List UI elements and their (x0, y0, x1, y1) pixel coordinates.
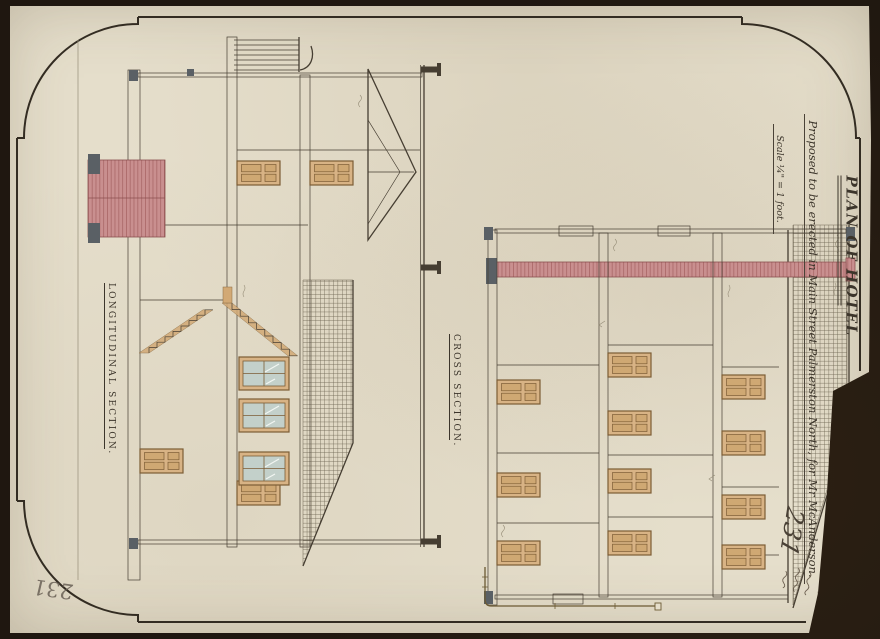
ground-line (488, 230, 497, 605)
gooseneck-rail (300, 46, 313, 70)
ground-floor (128, 70, 140, 580)
sheet-title: PLAN OF HOTEL (838, 176, 861, 306)
footing-block (484, 227, 493, 240)
blueprint-paper: PLAN OF HOTEL Proposed to be erected in … (0, 0, 880, 639)
label-longitudinal-section: LONGITUDINAL SECTION. (104, 283, 116, 449)
label-cross-section: CROSS SECTION. (449, 334, 461, 440)
downpipe (482, 567, 661, 610)
staircase (139, 287, 298, 356)
brick-chimney-foundation (88, 154, 165, 243)
footing-block (129, 70, 138, 81)
balcony-railing (234, 37, 313, 72)
scale-note: Scale ¼" = 1 foot. (773, 124, 785, 234)
roof-truss (368, 69, 416, 240)
balcony-bracket (187, 69, 194, 76)
left-end-wall (138, 73, 422, 77)
signature-handwriting (772, 556, 818, 620)
right-outer-wall (495, 595, 788, 599)
scanned-plan-photo: PLAN OF HOTEL Proposed to be erected in … (0, 0, 880, 639)
pencil-annotation (243, 95, 362, 297)
second-floor (713, 233, 722, 597)
right-end-wall (138, 540, 425, 544)
longitudinal-section-drawing (70, 35, 430, 585)
leanto-roof (303, 280, 353, 566)
first-floor (599, 233, 608, 597)
roof-ridge (421, 65, 425, 547)
footing-block (129, 538, 138, 549)
